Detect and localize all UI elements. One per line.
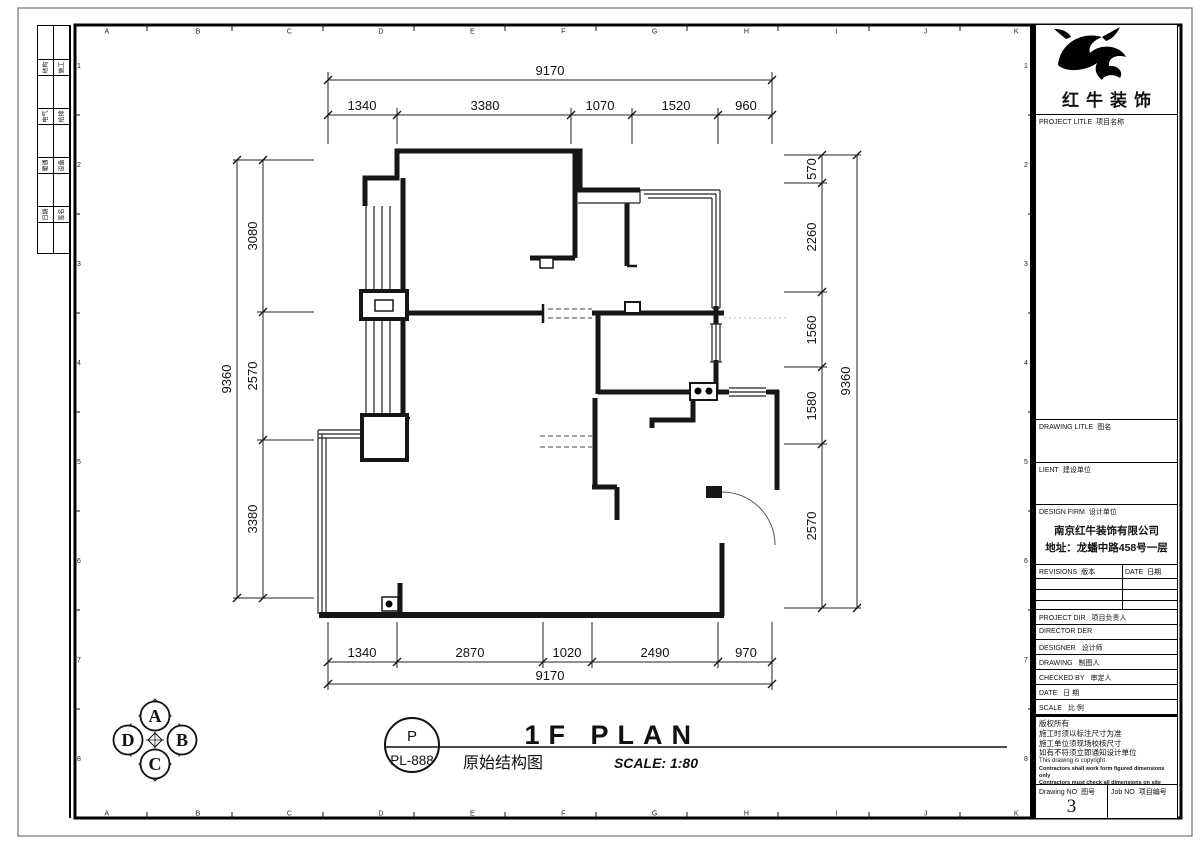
drawing-sheet: { "sheet": { "top_letters": "ABCDEFGHIJK… [0,0,1200,844]
svg-text:570: 570 [804,158,819,180]
svg-text:8: 8 [77,756,81,763]
drawing-number-cell: Drawing NO图号 3 Job NO项目编号 [1036,785,1177,818]
grid-references: ABCDEFGHIJK ABCDEFGHIJK 1 2 3 4 5 6 7 8 … [77,29,1105,818]
compass-label-b: B [176,730,188,750]
right-ruler-numbers: 1 2 3 4 5 6 7 8 [1024,63,1028,763]
svg-text:6: 6 [77,558,81,565]
wall-caps [396,266,637,418]
sheet-canvas: ABCDEFGHIJK ABCDEFGHIJK 1 2 3 4 5 6 7 8 … [0,0,1200,844]
client-label-cn: 建设单位 [1063,467,1091,474]
svg-text:7: 7 [77,657,81,664]
design-firm-cell: DESIGN FIRM设计单位 南京红牛装饰有限公司 地址：龙蟠中路458号一层 [1036,505,1177,565]
row-checked-by: CHECKED BY审定人 [1036,670,1177,685]
firm-label-cn: 设计单位 [1089,509,1117,516]
row-drawing: DRAWING制图人 [1036,655,1177,670]
compass-label-c: C [149,754,162,774]
svg-text:1340: 1340 [348,98,377,113]
sheet-marker-code: PL-888 [390,753,434,768]
dimension-labels: 9170 1340 3380 1070 1520 960 1340 2870 1… [219,63,853,683]
brand-name: 红牛装饰 [1055,86,1158,111]
svg-text:2: 2 [77,162,81,169]
sig-label: 暖通 [41,159,50,171]
project-title-cell: PROJECT LITLE项目名称 [1036,115,1177,420]
compass-label-a: A [149,706,162,726]
svg-text:8: 8 [1024,756,1028,763]
drawing-title-cn: 原始结构图 [463,753,543,772]
drain-point [386,601,393,608]
firm-name: 南京红牛装饰有限公司 [1036,523,1177,538]
date-col-label-cn: 日期 [1147,569,1161,576]
sig-label: 给排 [57,110,66,122]
copyright-cell: 版权所有 施工时须以标注尺寸为准 施工单位须现场校核尺寸 如有不符须立即通知设计… [1036,715,1177,785]
svg-text:7: 7 [1024,657,1028,664]
drawing-scale: SCALE: 1:80 [614,755,698,771]
svg-text:1: 1 [77,63,81,70]
svg-text:960: 960 [735,98,757,113]
drawing-number: 3 [1036,796,1107,818]
svg-text:1560: 1560 [804,316,819,345]
compass-label-d: D [122,730,135,750]
svg-text:3080: 3080 [245,222,260,251]
drawing-title-bar: P PL-888 原始结构图 1F PLAN SCALE: 1:80 [385,718,1007,772]
svg-text:6: 6 [1024,558,1028,565]
svg-text:5: 5 [77,459,81,466]
row-project-dir: PROJECT DIR项目负责人 [1036,610,1177,625]
client-label-en: LIENT [1039,467,1059,474]
svg-text:1020: 1020 [553,645,582,660]
revisions-cell: REVISIONS版本 DATE日期 [1036,565,1177,610]
svg-text:5: 5 [1024,459,1028,466]
svg-text:2: 2 [1024,162,1028,169]
door-openings-dashed [540,309,592,447]
row-designer: DESIGNER设计师 [1036,640,1177,655]
svg-text:2870: 2870 [456,645,485,660]
sheet-frame [18,8,1192,836]
svg-text:1340: 1340 [348,645,377,660]
row-scale: SCALE比 例 [1036,700,1177,715]
svg-text:1520: 1520 [662,98,691,113]
sig-label: 结构 [41,61,50,73]
title-block: 红牛装饰 PROJECT LITLE项目名称 DRAWING LITLE图名 L… [1036,25,1178,818]
drawing-title-en: 1F PLAN [524,720,700,750]
svg-text:3: 3 [1024,261,1028,268]
job-no-label-en: Job NO [1111,789,1135,796]
sheet-marker-letter: P [407,728,417,745]
sig-label: 设备 [57,159,66,171]
job-no-label-cn: 项目编号 [1139,789,1167,796]
top-ruler-letters: ABCDEFGHIJK [105,29,1106,36]
left-ruler-numbers: 1 2 3 4 5 6 7 8 [77,63,81,763]
svg-text:4: 4 [1024,360,1028,367]
svg-text:1: 1 [1024,63,1028,70]
dim-left-total: 9360 [219,365,234,394]
dimension-lines [233,72,861,690]
svg-text:970: 970 [735,645,757,660]
revisions-label-en: REVISIONS [1039,569,1077,576]
sig-label: 签名 [57,208,66,220]
svg-text:4: 4 [77,360,81,367]
sig-label: 施工 [57,61,66,73]
door-swing-arc [722,492,775,545]
stove-symbol [690,383,717,400]
firm-address: 地址：龙蟠中路458号一层 [1036,540,1177,555]
firm-label-en: DESIGN FIRM [1039,509,1085,516]
drawing-no-label-en: Drawing NO [1039,789,1077,796]
row-date: DATE日 期 [1036,685,1177,700]
svg-text:2570: 2570 [804,512,819,541]
entry-door [706,486,775,545]
sig-label: 日期 [41,208,50,220]
compass-rose: A B C D [114,699,197,781]
dim-bottom-total: 9170 [536,668,565,683]
revisions-label-cn: 版本 [1081,569,1095,576]
drawing-title-cell: DRAWING LITLE图名 [1036,420,1177,463]
client-cell: LIENT建设单位 [1036,463,1177,505]
drawing-label-en: DRAWING LITLE [1039,424,1093,431]
project-label-cn: 项目名称 [1096,119,1124,126]
company-logo-cell: 红牛装饰 [1036,25,1177,115]
svg-text:1580: 1580 [804,392,819,421]
svg-text:3380: 3380 [471,98,500,113]
row-director: DIRECTOR DER [1036,625,1177,640]
svg-text:1070: 1070 [586,98,615,113]
floor-plan [318,151,788,616]
dim-top-total: 9170 [536,63,565,78]
svg-text:2260: 2260 [804,223,819,252]
window-lines [318,190,766,614]
dimension-ticks [233,76,861,688]
date-col-label-en: DATE [1125,569,1143,576]
bottom-ruler-letters: ABCDEFGHIJK [105,811,1106,818]
svg-text:2570: 2570 [245,362,260,391]
drawing-no-label-cn: 图号 [1081,789,1095,796]
svg-text:3380: 3380 [245,505,260,534]
project-label-en: PROJECT LITLE [1039,119,1092,126]
sig-label: 电气 [41,110,50,122]
drawing-label-cn: 图名 [1097,424,1111,431]
svg-text:2490: 2490 [641,645,670,660]
dim-right-total: 9360 [838,367,853,396]
svg-text:3: 3 [77,261,81,268]
signature-strip: 结构 施工 电气 给排 暖通 设备 日期 签名 [37,25,70,254]
bull-logo-icon [1036,25,1146,81]
